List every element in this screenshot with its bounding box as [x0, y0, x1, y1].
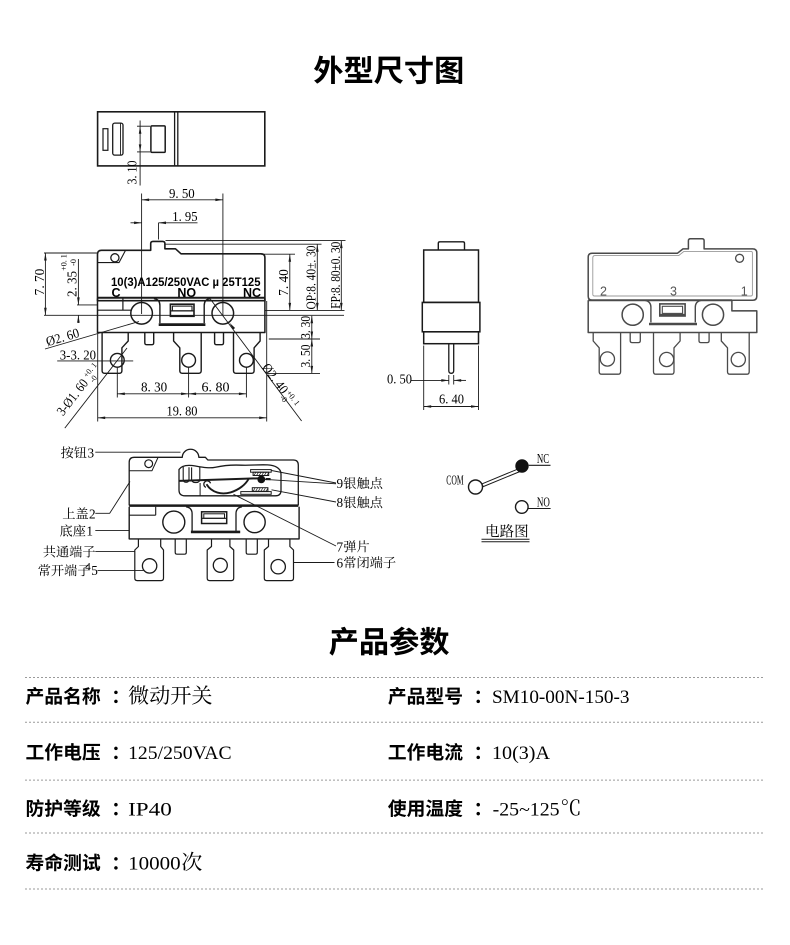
- svg-text:3. 10: 3. 10: [124, 160, 139, 184]
- svg-text:2: 2: [600, 285, 607, 299]
- svg-text:125/250VAC: 125/250VAC: [128, 743, 232, 764]
- svg-text:SM10-00N-150-3: SM10-00N-150-3: [492, 687, 630, 708]
- svg-text:3: 3: [88, 445, 95, 460]
- svg-text:1: 1: [86, 524, 93, 539]
- svg-text:3. 30: 3. 30: [298, 316, 313, 339]
- svg-text:10000: 10000: [128, 854, 181, 875]
- svg-text:6. 40: 6. 40: [439, 392, 464, 407]
- svg-text:3: 3: [670, 285, 677, 299]
- svg-text:7. 40: 7. 40: [276, 269, 291, 296]
- svg-text:6: 6: [337, 555, 344, 570]
- svg-text:3-3. 20: 3-3. 20: [60, 347, 96, 362]
- svg-text:-0: -0: [69, 259, 78, 266]
- svg-text:9: 9: [337, 476, 344, 491]
- svg-text:1: 1: [741, 285, 748, 299]
- svg-text:0. 50: 0. 50: [387, 372, 412, 387]
- svg-text:3. 50: 3. 50: [298, 344, 313, 367]
- svg-text:COM: COM: [446, 473, 463, 488]
- svg-text:9. 50: 9. 50: [169, 186, 195, 201]
- svg-text:8. 30: 8. 30: [141, 379, 167, 394]
- svg-text:+0. 1: +0. 1: [59, 254, 68, 271]
- svg-text:7: 7: [337, 539, 344, 554]
- svg-text:NO: NO: [177, 286, 196, 300]
- svg-text:19. 80: 19. 80: [167, 403, 198, 418]
- svg-text:NC: NC: [243, 286, 261, 300]
- svg-text:OP:8. 40±. 30: OP:8. 40±. 30: [304, 245, 319, 309]
- svg-text:2. 35: 2. 35: [65, 271, 80, 297]
- svg-text:6. 80: 6. 80: [202, 379, 230, 394]
- svg-text:-25~125: -25~125: [493, 799, 560, 820]
- svg-text:NO: NO: [537, 494, 550, 509]
- svg-text:FP:8. 80±0. 30: FP:8. 80±0. 30: [328, 242, 343, 309]
- svg-text:2: 2: [89, 506, 96, 521]
- svg-text:IP40: IP40: [128, 799, 172, 820]
- svg-text:10(3)A: 10(3)A: [492, 743, 550, 764]
- svg-text:8: 8: [337, 495, 344, 510]
- svg-text:NC: NC: [537, 451, 549, 466]
- svg-text:7. 70: 7. 70: [32, 268, 47, 295]
- svg-text:C: C: [112, 286, 121, 300]
- svg-text:5: 5: [91, 563, 98, 578]
- svg-text:1. 95: 1. 95: [172, 209, 197, 224]
